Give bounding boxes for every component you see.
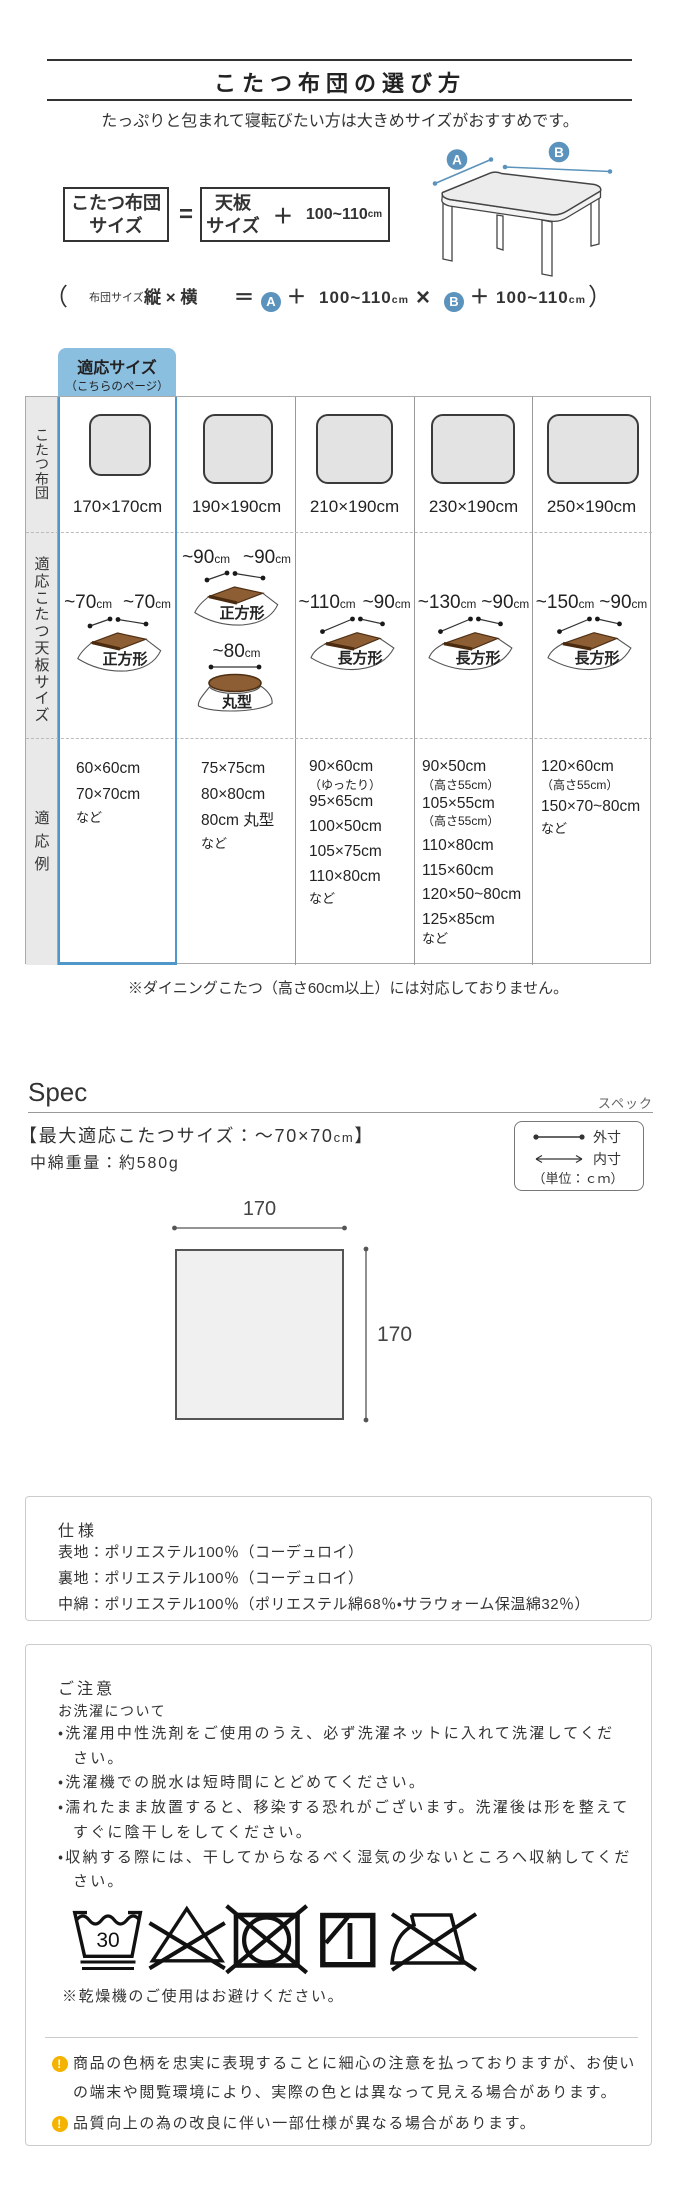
svg-text:長方形: 長方形 [574, 649, 619, 667]
svg-text:外寸: 外寸 [593, 1129, 621, 1145]
svg-text:B: B [554, 145, 564, 160]
svg-text:長方形: 長方形 [455, 649, 500, 667]
svg-text:30: 30 [96, 1929, 119, 1952]
svg-text:長方形: 長方形 [337, 649, 382, 667]
svg-text:正方形: 正方形 [219, 604, 264, 622]
svg-text:（単位：ｃｍ）: （単位：ｃｍ） [532, 1171, 623, 1186]
svg-text:A: A [452, 152, 462, 167]
svg-text:内寸: 内寸 [593, 1151, 621, 1167]
svg-text:丸型: 丸型 [221, 693, 252, 711]
